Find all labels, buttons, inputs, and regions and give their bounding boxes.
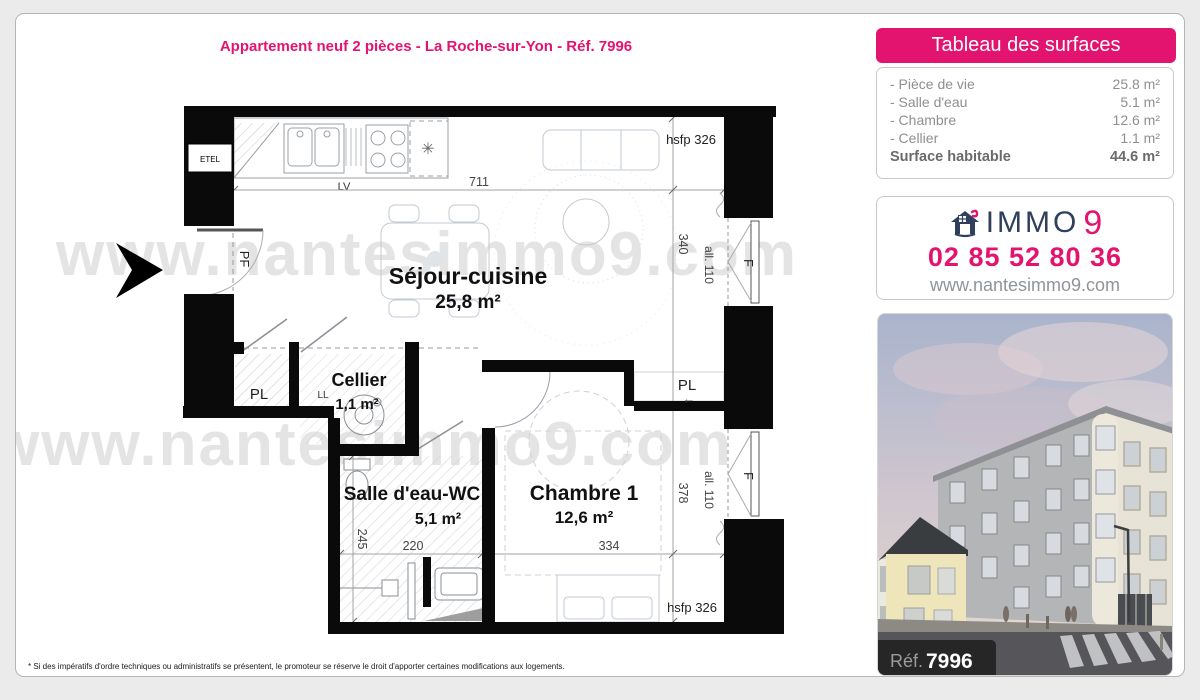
surfaces-panel-header: Tableau des surfaces [876, 28, 1176, 63]
surface-row: - Cellier 1.1 m² [890, 129, 1160, 147]
hsfp-bottom-label: hsfp 326 [667, 600, 717, 615]
surface-row: - Chambre 12.6 m² [890, 111, 1160, 129]
surface-row-value: 12.6 m² [1113, 111, 1160, 129]
dim-334: 334 [599, 539, 620, 553]
window-f-top-label: F [741, 259, 756, 267]
dim-all110-top: all. 110 [702, 246, 716, 284]
ref-number: 7996 [926, 650, 973, 673]
pl-left-label: PL [250, 386, 268, 403]
sejour-name: Séjour-cuisine [389, 263, 547, 289]
pf-label: PF [237, 251, 252, 268]
brand-text: IMMO [986, 206, 1080, 240]
surface-row-value: 25.8 m² [1113, 75, 1160, 93]
cellier-name: Cellier [331, 370, 386, 390]
sejour-area: 25,8 m² [435, 292, 500, 313]
surface-total-label: Surface habitable [890, 147, 1011, 168]
legal-footnote: * Si des impératifs d'ordre techniques o… [28, 662, 565, 671]
photo-ref-badge: Réf. 7996 [878, 640, 996, 676]
surface-row-value: 5.1 m² [1120, 93, 1160, 111]
etel-label: ETEL [200, 155, 221, 164]
page-title: Appartement neuf 2 pièces - La Roche-sur… [16, 38, 836, 55]
cellier-area: 1,1 m² [335, 396, 378, 413]
dim-245: 245 [355, 529, 369, 550]
sejour-furniture [381, 130, 678, 345]
surface-row-label: - Pièce de vie [890, 75, 975, 93]
surface-total-row: Surface habitable 44.6 m² [890, 147, 1160, 168]
brand-number: 9 [1083, 204, 1102, 243]
window-f-bottom-label: F [741, 472, 756, 480]
pl-right-arrow: ← [683, 391, 696, 406]
surfaces-table: - Pièce de vie 25.8 m² - Salle d'eau 5.1… [876, 67, 1174, 179]
entrance-arrow [116, 243, 163, 298]
house-icon [948, 206, 982, 240]
agency-phone[interactable]: 02 85 52 80 36 [877, 241, 1173, 273]
dim-340: 340 [676, 234, 690, 255]
hsfp-top-label: hsfp 326 [666, 132, 716, 147]
agency-contact-card: IMMO 9 02 85 52 80 36 www.nantesimmo9.co… [876, 196, 1174, 300]
salle-eau-area: 5,1 m² [415, 511, 461, 528]
surface-row: - Pièce de vie 25.8 m² [890, 75, 1160, 93]
surface-row-value: 1.1 m² [1120, 129, 1160, 147]
dishwasher-label: LV [338, 181, 351, 193]
surface-row-label: - Salle d'eau [890, 93, 967, 111]
hood-star-symbol: ✳ [421, 141, 434, 158]
salle-eau-name: Salle d'eau-WC [344, 484, 481, 505]
agency-logo: IMMO 9 [877, 205, 1173, 241]
dim-220: 220 [403, 539, 424, 553]
building-photo: Réf. 7996 [877, 313, 1173, 676]
ll-label: LL [317, 390, 329, 401]
chambre-area: 12,6 m² [555, 508, 614, 527]
floor-plan: ✳ LV [101, 96, 801, 671]
agency-website[interactable]: www.nantesimmo9.com [877, 273, 1173, 297]
dim-all110-bottom: all. 110 [702, 471, 716, 509]
chambre-name: Chambre 1 [530, 482, 639, 505]
surface-row-label: - Chambre [890, 111, 956, 129]
surface-row-label: - Cellier [890, 129, 938, 147]
surface-row: - Salle d'eau 5.1 m² [890, 93, 1160, 111]
ref-label: Réf. [890, 651, 923, 671]
main-card: Appartement neuf 2 pièces - La Roche-sur… [15, 13, 1185, 677]
dim-711: 711 [469, 175, 489, 189]
surface-total-value: 44.6 m² [1110, 147, 1160, 168]
dim-378: 378 [676, 483, 690, 504]
